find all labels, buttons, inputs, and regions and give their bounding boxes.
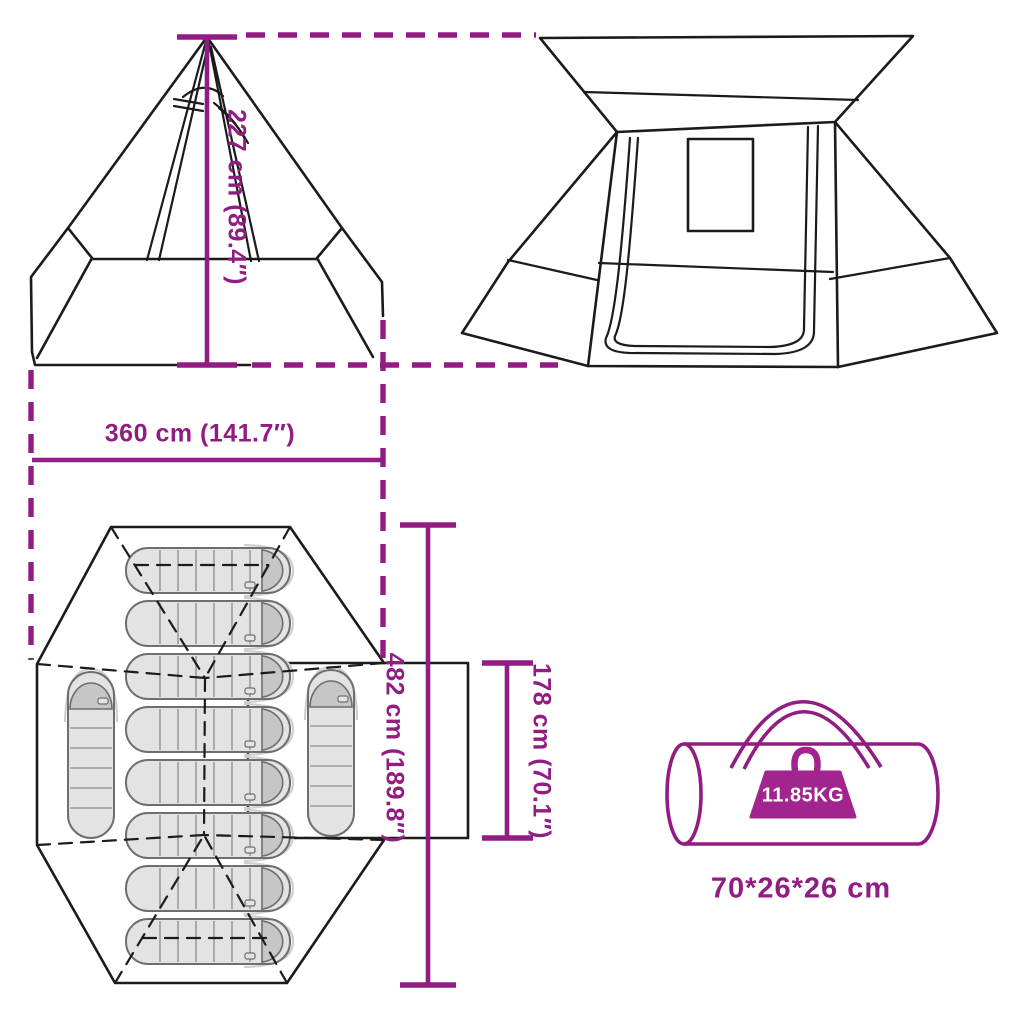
diagram-canvas [0,0,1024,1024]
window [688,139,753,231]
product-dimension-diagram: 227 cm (89.4″) 360 cm (141.7″) 482 cm (1… [0,0,1024,1024]
sleeping-bag [126,545,293,596]
right-wing-seam [830,258,950,279]
sleeping-bag [65,669,117,838]
bag-left-cap [667,744,701,844]
carry-bag-size-label: 70*26*26 cm [711,873,891,906]
left-wing-seam [508,260,597,280]
body-seam [599,263,833,272]
right-wing [835,122,997,367]
height-dimension-label: 227 cm (89.4″) [222,109,251,285]
sleeping-bag [126,651,293,702]
sleeping-bag [126,863,293,914]
left-wing [462,132,617,366]
sleeping-bag [126,757,293,808]
sleeping-bag [305,667,357,836]
tent-fold-right [317,228,373,357]
sleeping-bag [126,704,293,755]
roof-seam [584,92,858,100]
weight-value-label: 11.85KG [762,785,844,808]
floor-length-dimension-label: 482 cm (189.8″) [380,653,409,843]
bag-handle [731,702,881,769]
sleeping-bag [126,598,293,649]
weight-loop [794,750,817,771]
sleeping-bag [126,810,293,861]
bag-right-cap [918,744,938,844]
sleeping-bags [65,545,357,967]
carry-bag [667,702,938,844]
tent-side-view [462,36,997,367]
tent-fold-left [37,228,92,358]
width-dimension-label: 360 cm (141.7″) [105,420,295,449]
door-width-dimension-label: 178 cm (70.1″) [527,663,556,839]
dimension-lines [31,35,558,985]
roof-outline [540,36,913,132]
